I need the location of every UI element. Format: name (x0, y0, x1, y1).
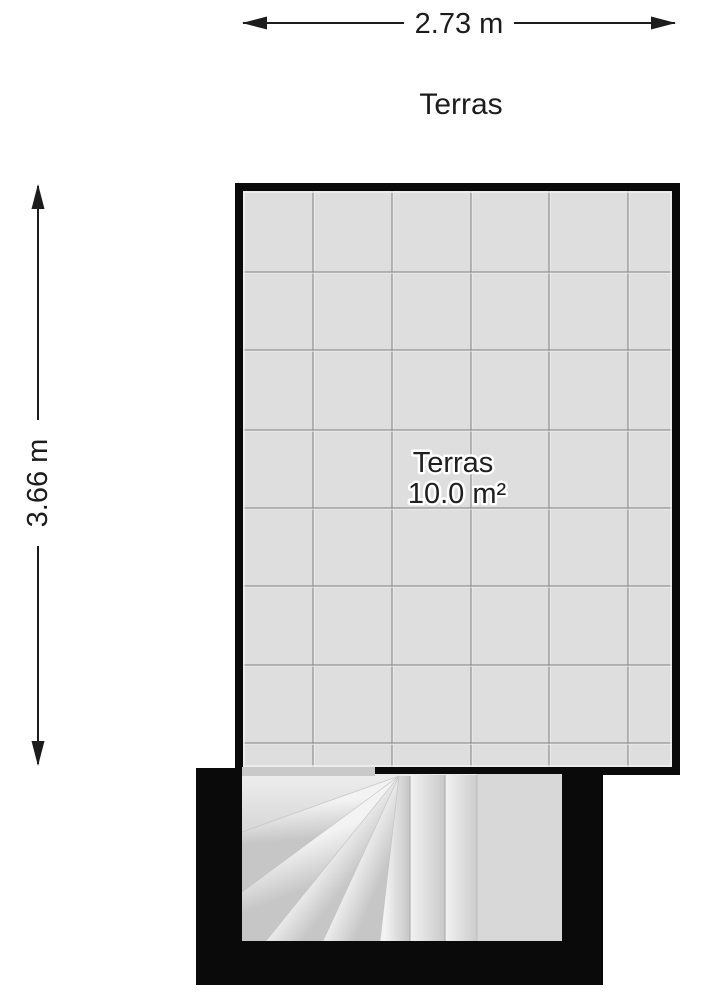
staircase-block (196, 767, 603, 985)
floor-title: Terras (419, 88, 502, 121)
arrow-up-icon (32, 184, 45, 209)
top-dimension: 2.73 m (242, 8, 676, 40)
room-name-label: Terras (413, 447, 494, 479)
floorplan-canvas: 2.73 m Terras 3.66 m (0, 0, 707, 1000)
left-dimension: 3.66 m (22, 184, 54, 766)
arrow-right-icon (651, 17, 676, 30)
stair-step (410, 775, 445, 941)
stair-steps (242, 774, 562, 941)
room-label-group: Terras 10.0 m² (408, 447, 507, 510)
floorplan-page: 2.73 m Terras 3.66 m (0, 0, 707, 1000)
width-dimension-label: 2.73 m (415, 8, 504, 40)
stair-threshold (242, 767, 375, 776)
arrow-down-icon (32, 741, 45, 766)
stair-landing (477, 774, 562, 941)
room-area-label: 10.0 m² (408, 478, 507, 510)
arrow-left-icon (242, 17, 267, 30)
height-dimension-label: 3.66 m (22, 439, 54, 528)
stair-step (445, 775, 477, 941)
